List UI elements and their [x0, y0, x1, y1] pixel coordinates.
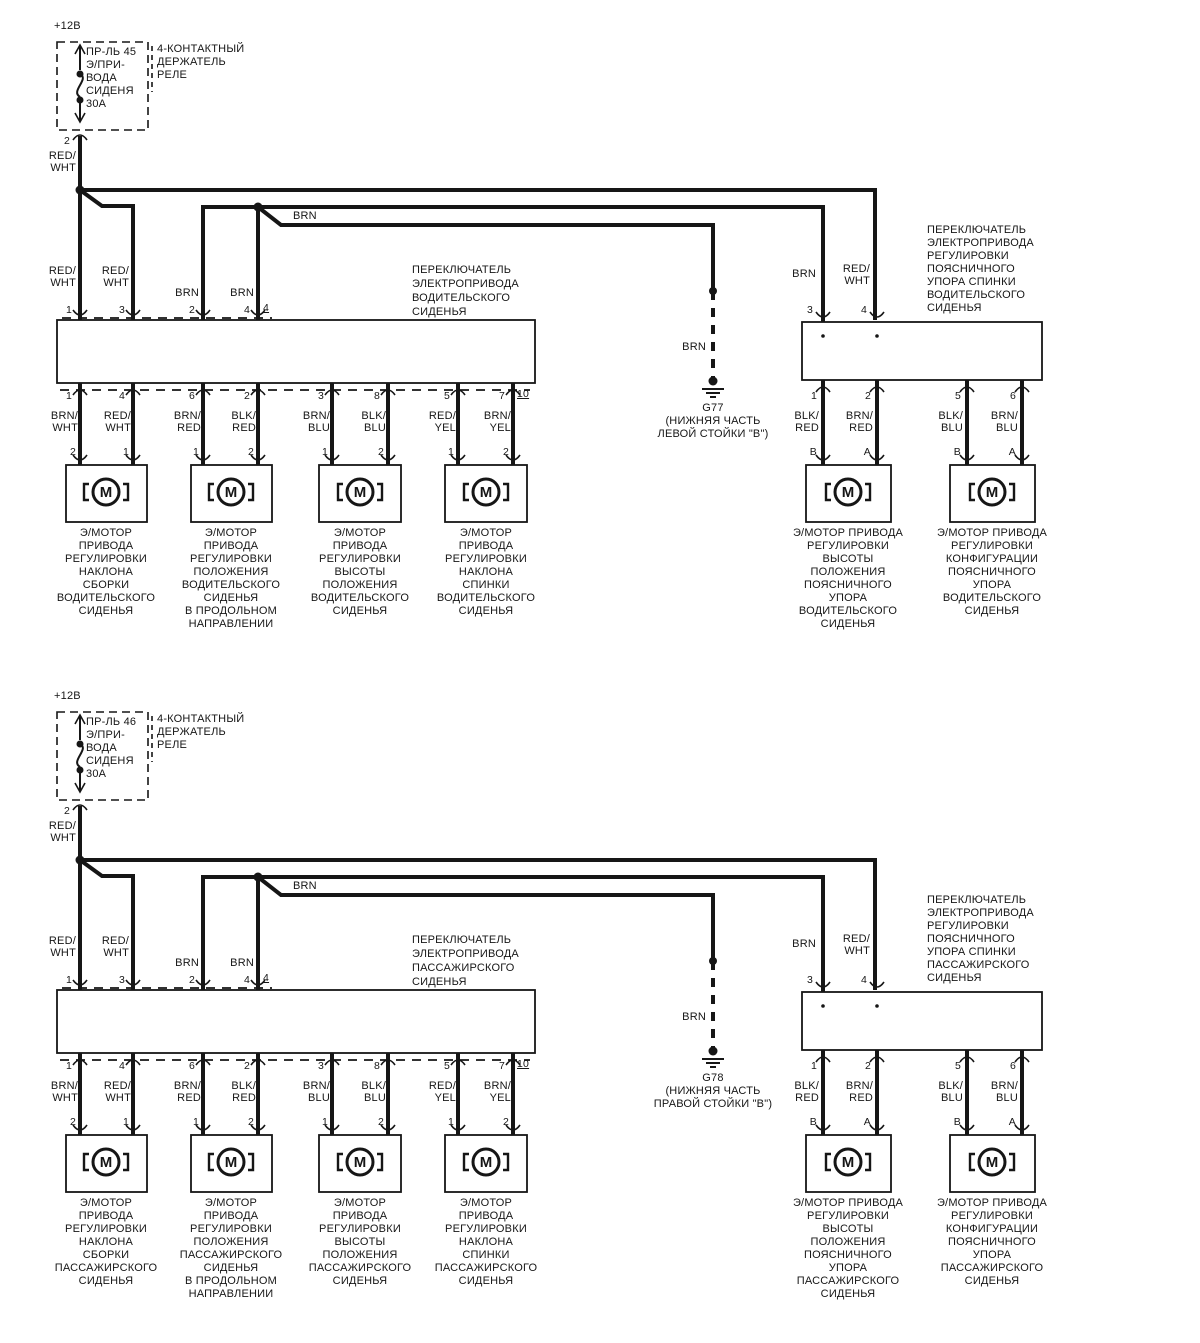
wire-color-label: BRN/ BLU [982, 1080, 1018, 1104]
motor-caption: Э/МОТОР ПРИВОДА РЕГУЛИРОВКИ ВЫСОТЫ ПОЛОЖ… [773, 1197, 923, 1301]
wire-color-label: BRN/ RED [165, 410, 201, 434]
lumbar-switch-caption: ПЕРЕКЛЮЧАТЕЛЬ ЭЛЕКТРОПРИВОДА РЕГУЛИРОВКИ… [927, 224, 1034, 315]
wire-color-label: RED/ WHT [42, 150, 76, 174]
wire-color-label: BRN [782, 268, 816, 281]
wire-color-label: RED/ WHT [93, 935, 129, 959]
wire-color-label: BLK/ RED [220, 1080, 256, 1104]
pin-number: 6 [183, 1061, 195, 1072]
pin-number: 4 [855, 305, 867, 316]
pin-number: 2 [64, 447, 76, 458]
wire-color-label: BRN [672, 1011, 706, 1024]
pin-number: 4 [113, 391, 125, 402]
pin-number: 2 [183, 975, 195, 986]
terminal-letter: A [859, 1117, 871, 1128]
motor-caption: Э/МОТОР ПРИВОДА РЕГУЛИРОВКИ НАКЛОНА СПИН… [421, 527, 551, 618]
pin-number: 1 [117, 447, 129, 458]
terminal-letter: B [949, 1117, 961, 1128]
pin-number: 3 [312, 391, 324, 402]
terminal-letter: B [805, 447, 817, 458]
pin-number: 8 [368, 391, 380, 402]
connector-number: 4 [263, 973, 269, 984]
fuse-pin-number: 2 [58, 806, 70, 817]
wire-color-label: BRN [293, 880, 317, 893]
pin-number: 3 [312, 1061, 324, 1072]
fuse-label: ПР-ЛЬ 45 Э/ПРИ- ВОДА СИДЕНЯ 30А [86, 46, 136, 111]
connector-number: 4 [263, 303, 269, 314]
wire-color-label: BRN [672, 341, 706, 354]
passenger-seat-section: +12В ПР-ЛЬ 46 Э/ПРИ- ВОДА СИДЕНЯ 30А 4-К… [0, 670, 1200, 1340]
relay-holder-label: 4-КОНТАКТНЫЙ ДЕРЖАТЕЛЬ РЕЛЕ [157, 43, 244, 82]
wire-color-label: BLK/ RED [220, 410, 256, 434]
motor-caption: Э/МОТОР ПРИВОДА РЕГУЛИРОВКИ КОНФИГУРАЦИИ… [917, 1197, 1067, 1288]
pin-number: 6 [183, 391, 195, 402]
motor-caption: Э/МОТОР ПРИВОДА РЕГУЛИРОВКИ ВЫСОТЫ ПОЛОЖ… [295, 527, 425, 618]
pin-number: 1 [316, 1117, 328, 1128]
pin-number: 5 [438, 1061, 450, 1072]
motor-caption: Э/МОТОР ПРИВОДА РЕГУЛИРОВКИ ВЫСОТЫ ПОЛОЖ… [773, 527, 923, 631]
pin-number: 1 [60, 305, 72, 316]
motor-caption: Э/МОТОР ПРИВОДА РЕГУЛИРОВКИ НАКЛОНА СБОР… [41, 1197, 171, 1288]
ground-caption: G78 (НИЖНЯЯ ЧАСТЬ ПРАВОЙ СТОЙКИ "В") [628, 1072, 798, 1111]
pin-number: 7 [493, 1061, 505, 1072]
wire-color-label: RED/ WHT [836, 263, 870, 287]
wire-color-label: RED/ WHT [95, 1080, 131, 1104]
pin-number: 1 [117, 1117, 129, 1128]
pin-number: 1 [442, 1117, 454, 1128]
ground-caption: G77 (НИЖНЯЯ ЧАСТЬ ЛЕВОЙ СТОЙКИ "В") [628, 402, 798, 441]
wire-color-label: BLK/ BLU [927, 1080, 963, 1104]
pin-number: 2 [242, 447, 254, 458]
wire-color-label: BLK/ RED [783, 1080, 819, 1104]
pin-number: 4 [855, 975, 867, 986]
wire-color-label: BRN/ BLU [294, 410, 330, 434]
wire-color-label: RED/ WHT [42, 820, 76, 844]
driver-seat-section: +12В ПР-ЛЬ 45 Э/ПРИ- ВОДА СИДЕНЯ 30А 4-К… [0, 0, 1200, 670]
wire-color-label: BRN/ WHT [42, 1080, 78, 1104]
pin-number: 4 [238, 975, 250, 986]
fuse-pin-number: 2 [58, 136, 70, 147]
wire-color-label: BRN [218, 287, 254, 300]
pin-number: 3 [801, 305, 813, 316]
pin-number: 2 [859, 1061, 871, 1072]
pin-number: 3 [113, 975, 125, 986]
pin-number: 2 [238, 1061, 250, 1072]
motor-caption: Э/МОТОР ПРИВОДА РЕГУЛИРОВКИ ВЫСОТЫ ПОЛОЖ… [295, 1197, 425, 1288]
wire-color-label: BRN/ YEL [475, 1080, 511, 1104]
pin-number: 1 [60, 391, 72, 402]
pin-number: 2 [372, 1117, 384, 1128]
pin-number: 5 [949, 1061, 961, 1072]
pin-number: 1 [316, 447, 328, 458]
pin-number: 1 [187, 447, 199, 458]
wire-color-label: BRN/ RED [837, 410, 873, 434]
terminal-letter: B [949, 447, 961, 458]
motor-caption: Э/МОТОР ПРИВОДА РЕГУЛИРОВКИ НАКЛОНА СПИН… [421, 1197, 551, 1288]
wire-color-label: RED/ WHT [836, 933, 870, 957]
connector-number: 10 [517, 389, 529, 400]
terminal-letter: A [859, 447, 871, 458]
wire-color-label: BRN/ RED [837, 1080, 873, 1104]
pin-number: 6 [1004, 1061, 1016, 1072]
pin-number: 6 [1004, 391, 1016, 402]
motor-caption: Э/МОТОР ПРИВОДА РЕГУЛИРОВКИ ПОЛОЖЕНИЯ ВО… [166, 527, 296, 631]
wire-color-label: BRN [163, 957, 199, 970]
wire-color-label: RED/ WHT [93, 265, 129, 289]
pin-number: 1 [60, 975, 72, 986]
wire-color-label: BLK/ BLU [350, 410, 386, 434]
pin-number: 1 [805, 391, 817, 402]
supply-voltage-label: +12В [54, 20, 81, 33]
pin-number: 2 [183, 305, 195, 316]
wire-color-label: BLK/ BLU [350, 1080, 386, 1104]
pin-number: 1 [60, 1061, 72, 1072]
terminal-letter: B [805, 1117, 817, 1128]
lumbar-switch-caption: ПЕРЕКЛЮЧАТЕЛЬ ЭЛЕКТРОПРИВОДА РЕГУЛИРОВКИ… [927, 894, 1034, 985]
pin-number: 2 [497, 447, 509, 458]
pin-number: 1 [442, 447, 454, 458]
terminal-letter: A [1004, 1117, 1016, 1128]
seat-switch-caption: ПЕРЕКЛЮЧАТЕЛЬ ЭЛЕКТРОПРИВОДА ВОДИТЕЛЬСКО… [412, 263, 519, 319]
pin-number: 2 [238, 391, 250, 402]
wire-color-label: BRN/ BLU [294, 1080, 330, 1104]
pin-number: 2 [242, 1117, 254, 1128]
wire-color-label: RED/ YEL [420, 410, 456, 434]
seat-switch-caption: ПЕРЕКЛЮЧАТЕЛЬ ЭЛЕКТРОПРИВОДА ПАССАЖИРСКО… [412, 933, 519, 989]
terminal-letter: A [1004, 447, 1016, 458]
wire-color-label: BRN/ RED [165, 1080, 201, 1104]
wire-color-label: BLK/ RED [783, 410, 819, 434]
wire-color-label: BLK/ BLU [927, 410, 963, 434]
wire-color-label: BRN [218, 957, 254, 970]
wire-color-label: BRN/ WHT [42, 410, 78, 434]
wire-color-label: BRN [782, 938, 816, 951]
pin-number: 5 [438, 391, 450, 402]
wire-color-label: RED/ YEL [420, 1080, 456, 1104]
wire-color-label: RED/ WHT [95, 410, 131, 434]
pin-number: 1 [805, 1061, 817, 1072]
pin-number: 8 [368, 1061, 380, 1072]
pin-number: 2 [372, 447, 384, 458]
wire-color-label: BRN [163, 287, 199, 300]
pin-number: 4 [238, 305, 250, 316]
pin-number: 7 [493, 391, 505, 402]
pin-number: 3 [801, 975, 813, 986]
relay-holder-label: 4-КОНТАКТНЫЙ ДЕРЖАТЕЛЬ РЕЛЕ [157, 713, 244, 752]
wire-color-label: RED/ WHT [40, 265, 76, 289]
supply-voltage-label: +12В [54, 690, 81, 703]
pin-number: 2 [497, 1117, 509, 1128]
pin-number: 3 [113, 305, 125, 316]
fuse-label: ПР-ЛЬ 46 Э/ПРИ- ВОДА СИДЕНЯ 30А [86, 716, 136, 781]
pin-number: 2 [64, 1117, 76, 1128]
connector-number: 10 [517, 1059, 529, 1070]
pin-number: 5 [949, 391, 961, 402]
pin-number: 1 [187, 1117, 199, 1128]
pin-number: 4 [113, 1061, 125, 1072]
wire-color-label: BRN/ YEL [475, 410, 511, 434]
motor-caption: Э/МОТОР ПРИВОДА РЕГУЛИРОВКИ ПОЛОЖЕНИЯ ПА… [166, 1197, 296, 1301]
wire-color-label: RED/ WHT [40, 935, 76, 959]
wire-color-label: BRN [293, 210, 317, 223]
motor-caption: Э/МОТОР ПРИВОДА РЕГУЛИРОВКИ КОНФИГУРАЦИИ… [917, 527, 1067, 618]
pin-number: 2 [859, 391, 871, 402]
wire-color-label: BRN/ BLU [982, 410, 1018, 434]
wiring-diagram-page: M M M M [0, 0, 1200, 1343]
motor-caption: Э/МОТОР ПРИВОДА РЕГУЛИРОВКИ НАКЛОНА СБОР… [41, 527, 171, 618]
